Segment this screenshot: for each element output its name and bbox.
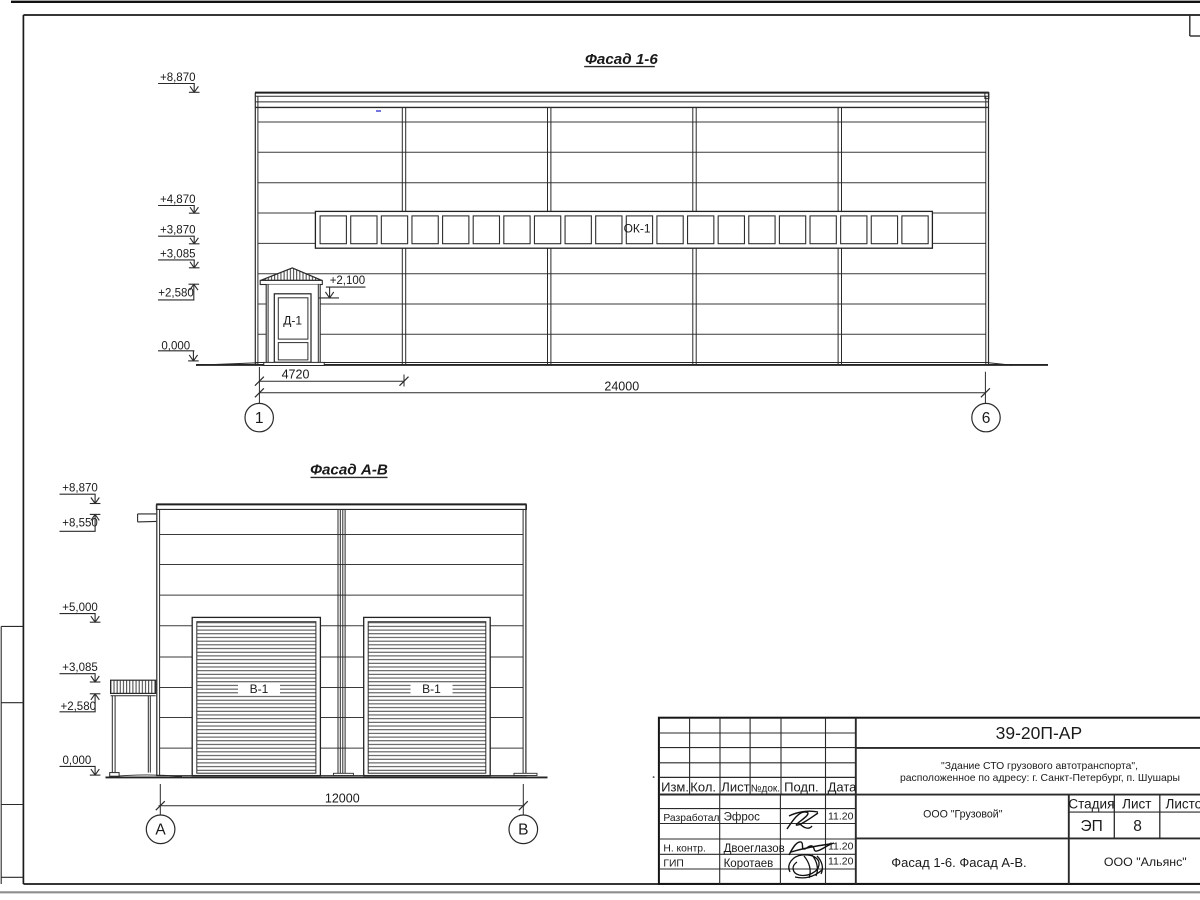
- svg-text:+2,100: +2,100: [330, 275, 366, 287]
- svg-text:В-1: В-1: [422, 682, 441, 696]
- svg-text:+8,870: +8,870: [62, 483, 98, 495]
- svg-text:Фасад 1-6: Фасад 1-6: [585, 51, 658, 68]
- svg-text:1: 1: [255, 410, 264, 427]
- svg-text:Дата: Дата: [828, 779, 858, 794]
- svg-text:39-20П-АР: 39-20П-АР: [996, 723, 1083, 743]
- svg-text:4720: 4720: [282, 368, 310, 382]
- svg-text:+3,085: +3,085: [160, 248, 196, 260]
- svg-text:Разработал: Разработал: [663, 812, 719, 824]
- svg-text:Двоеглазов: Двоеглазов: [724, 843, 785, 855]
- svg-text:6: 6: [982, 410, 991, 427]
- svg-text:11.20: 11.20: [828, 841, 854, 853]
- svg-text:Эфрос: Эфрос: [724, 812, 761, 824]
- svg-text:В-1: В-1: [250, 682, 269, 696]
- svg-text:В: В: [518, 822, 528, 839]
- svg-text:"Здание СТО грузового автотран: "Здание СТО грузового автотранспорта",: [941, 761, 1138, 772]
- svg-text:Листов: Листов: [1166, 797, 1200, 812]
- svg-text:ООО "Альянс": ООО "Альянс": [1104, 855, 1187, 869]
- svg-text:Подп.: Подп.: [784, 779, 819, 794]
- svg-text:12000: 12000: [325, 792, 360, 806]
- svg-text:Стадия: Стадия: [1068, 797, 1114, 812]
- svg-text:А: А: [155, 822, 166, 839]
- svg-text:Д-1: Д-1: [283, 313, 302, 327]
- svg-text:ООО "Грузовой": ООО "Грузовой": [923, 808, 1003, 820]
- svg-text:Коротаев: Коротаев: [724, 858, 774, 870]
- svg-text:расположенное по адресу: г. Са: расположенное по адресу: г. Санкт-Петерб…: [900, 772, 1180, 784]
- svg-text:Фасад 1-6. Фасад А-В.: Фасад 1-6. Фасад А-В.: [891, 855, 1026, 870]
- svg-text:0,000: 0,000: [63, 755, 92, 767]
- svg-text:Изм.: Изм.: [661, 779, 689, 794]
- svg-text:ЭП: ЭП: [1080, 818, 1102, 835]
- svg-text:+2,580: +2,580: [158, 287, 194, 299]
- svg-text:+3,870: +3,870: [160, 224, 196, 236]
- svg-text:ГИП: ГИП: [663, 859, 683, 870]
- svg-text:+3,085: +3,085: [62, 662, 98, 674]
- svg-text:Лист: Лист: [721, 779, 749, 794]
- svg-text:Лист: Лист: [1122, 797, 1151, 812]
- svg-text:№док.: №док.: [751, 784, 780, 795]
- svg-text:+8,870: +8,870: [160, 72, 196, 84]
- svg-text:11.20: 11.20: [828, 811, 854, 823]
- svg-text:+8,550: +8,550: [62, 518, 98, 530]
- svg-text:+2,580: +2,580: [61, 701, 97, 713]
- svg-text:+4,870: +4,870: [160, 194, 196, 206]
- svg-text:+5,000: +5,000: [62, 602, 98, 614]
- svg-text:Н. контр.: Н. контр.: [663, 843, 706, 854]
- svg-text:Фасад А-В: Фасад А-В: [310, 461, 388, 478]
- svg-text:11.20: 11.20: [828, 856, 854, 868]
- svg-text:8: 8: [1133, 818, 1142, 835]
- svg-text:Кол.: Кол.: [690, 779, 716, 794]
- svg-text:ОК-1: ОК-1: [624, 222, 651, 236]
- svg-text:24000: 24000: [604, 380, 639, 394]
